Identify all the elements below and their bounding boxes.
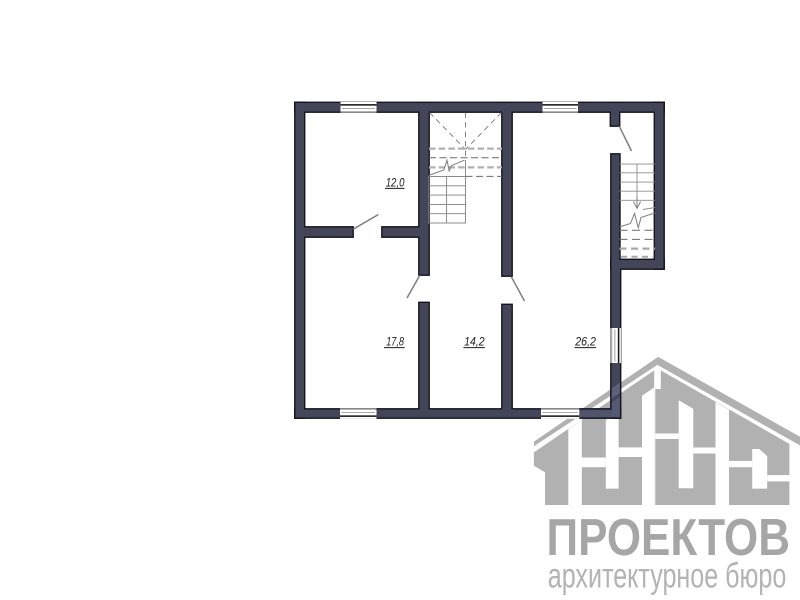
svg-text:14,2: 14,2: [464, 334, 485, 348]
svg-text:12,0: 12,0: [386, 176, 405, 190]
svg-text:архитектурное бюро: архитектурное бюро: [548, 557, 787, 596]
svg-text:17,8: 17,8: [386, 334, 404, 348]
svg-text:26,2: 26,2: [574, 334, 596, 348]
